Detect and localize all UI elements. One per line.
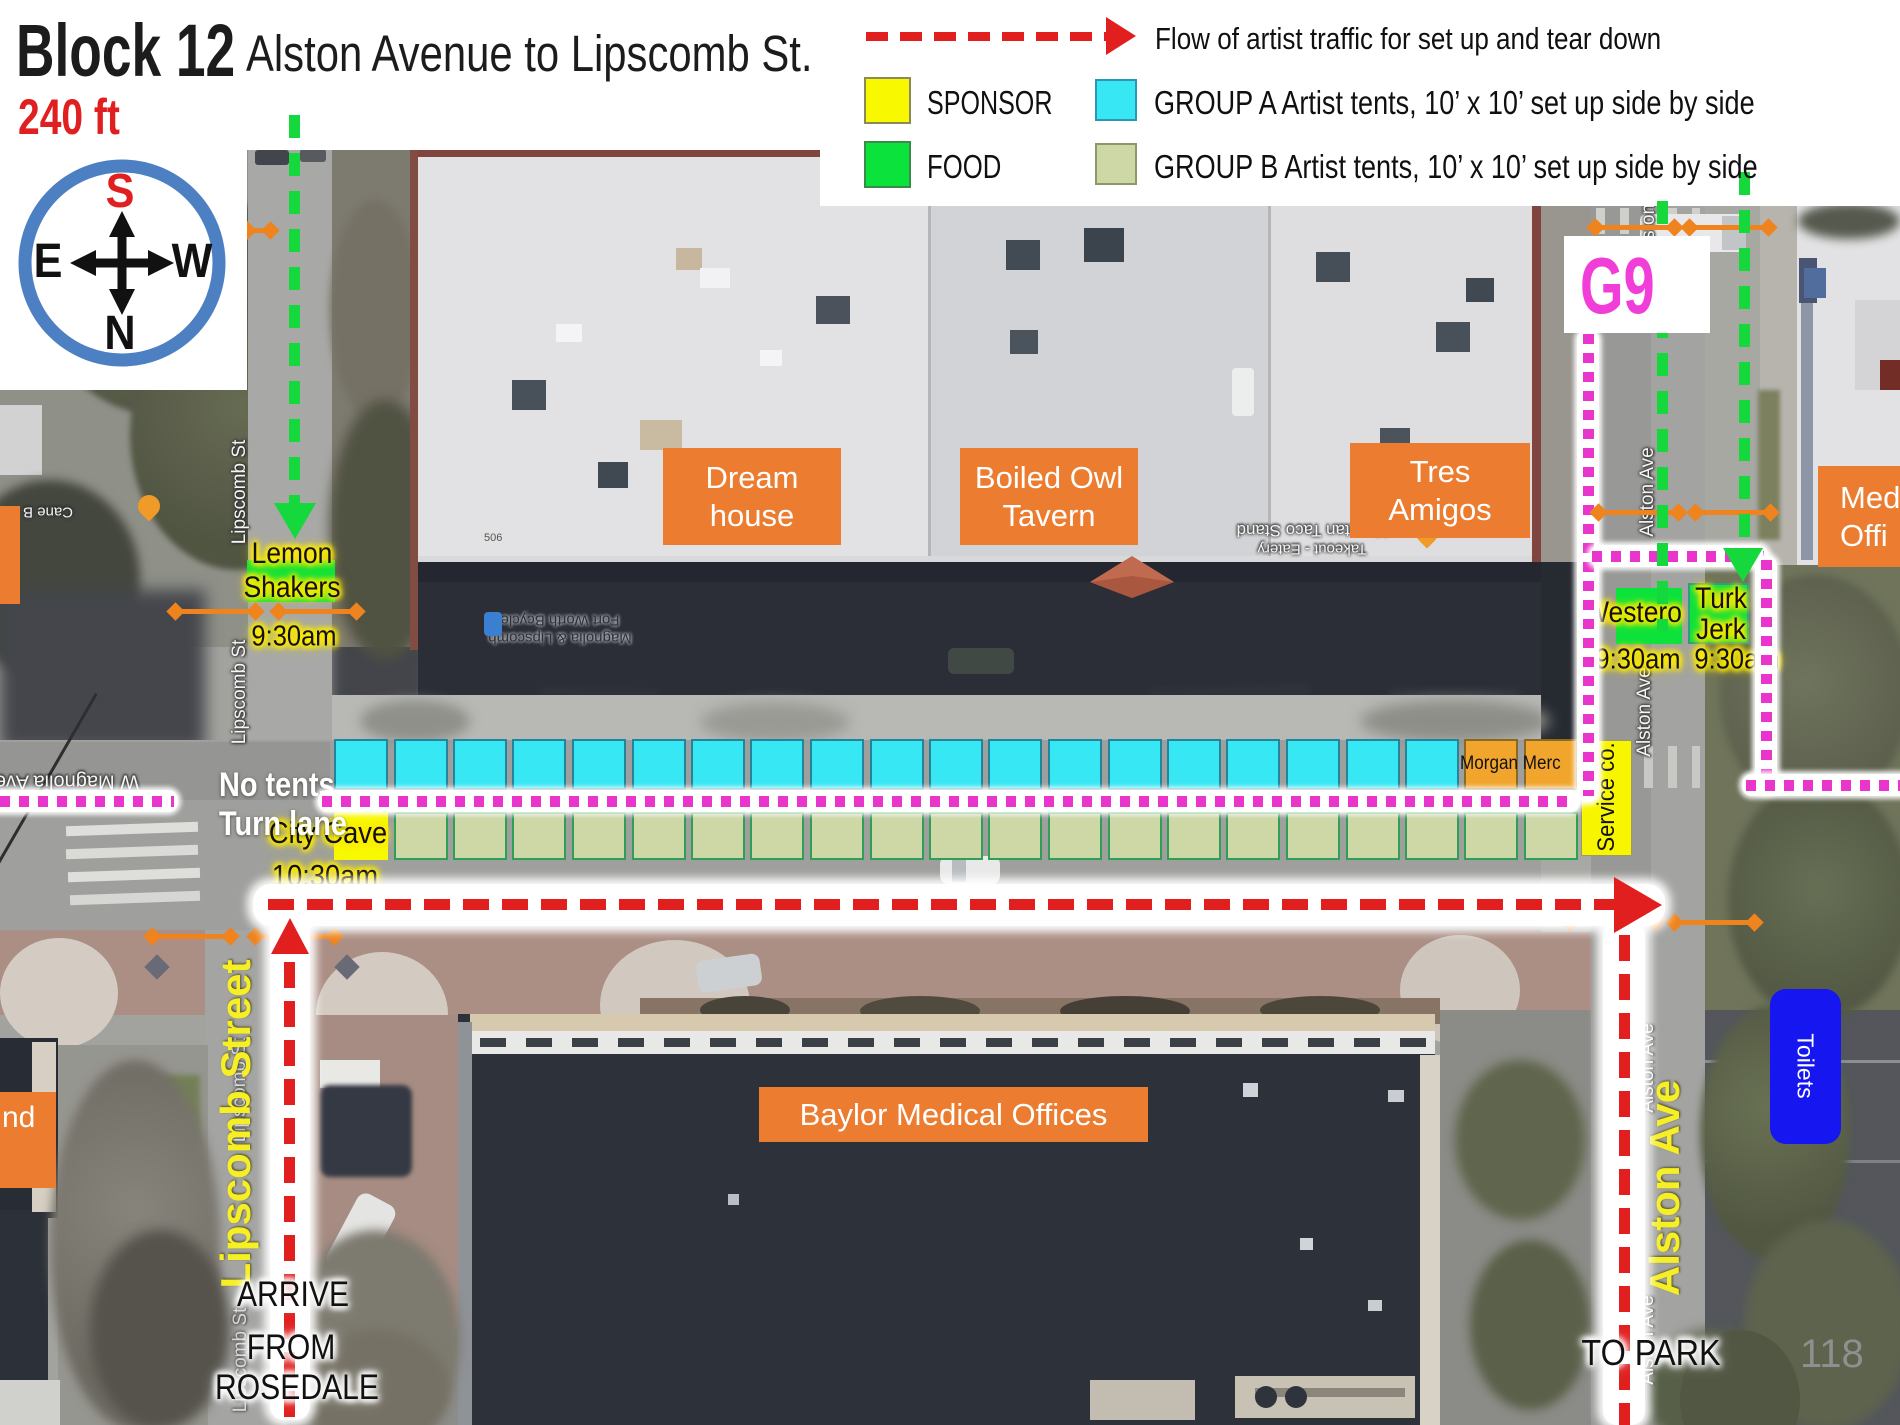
svg-text:W: W (172, 234, 214, 288)
svg-text:S: S (106, 164, 135, 218)
svg-text:N: N (104, 306, 135, 360)
svg-text:E: E (34, 234, 63, 288)
